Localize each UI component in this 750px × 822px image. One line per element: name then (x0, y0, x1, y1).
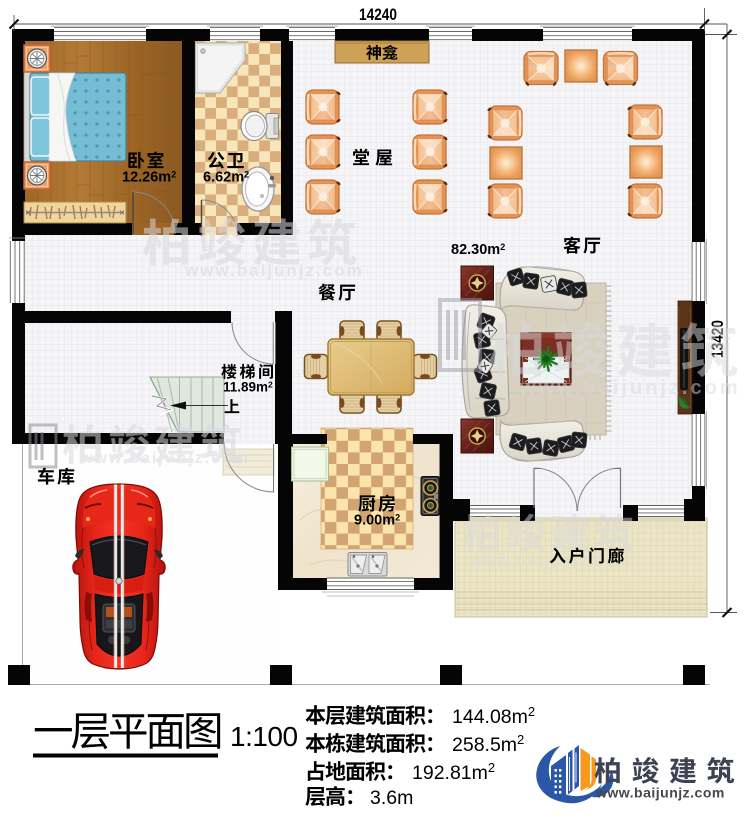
svg-text:6.62m2: 6.62m2 (203, 170, 249, 186)
svg-text:9.00m2: 9.00m2 (354, 513, 400, 529)
svg-text:144.08m2: 144.08m2 (452, 704, 535, 728)
svg-text:3.6m: 3.6m (370, 787, 413, 809)
svg-text:12.26m2: 12.26m2 (122, 170, 176, 186)
svg-text:258.5m2: 258.5m2 (452, 732, 524, 756)
svg-text:www.baijunjz.com: www.baijunjz.com (79, 450, 250, 467)
svg-text:www.baijunjz.com: www.baijunjz.com (595, 785, 725, 801)
svg-text:www.baijunjz.com: www.baijunjz.com (184, 261, 364, 280)
svg-text:192.81m2: 192.81m2 (412, 760, 495, 784)
svg-text:82.30m2: 82.30m2 (451, 242, 505, 258)
svg-text:14240: 14240 (359, 5, 397, 24)
svg-text:www.baijunjz.com: www.baijunjz.com (519, 377, 741, 399)
svg-text:11.89m2: 11.89m2 (223, 380, 273, 395)
svg-text:1:100: 1:100 (230, 721, 298, 752)
